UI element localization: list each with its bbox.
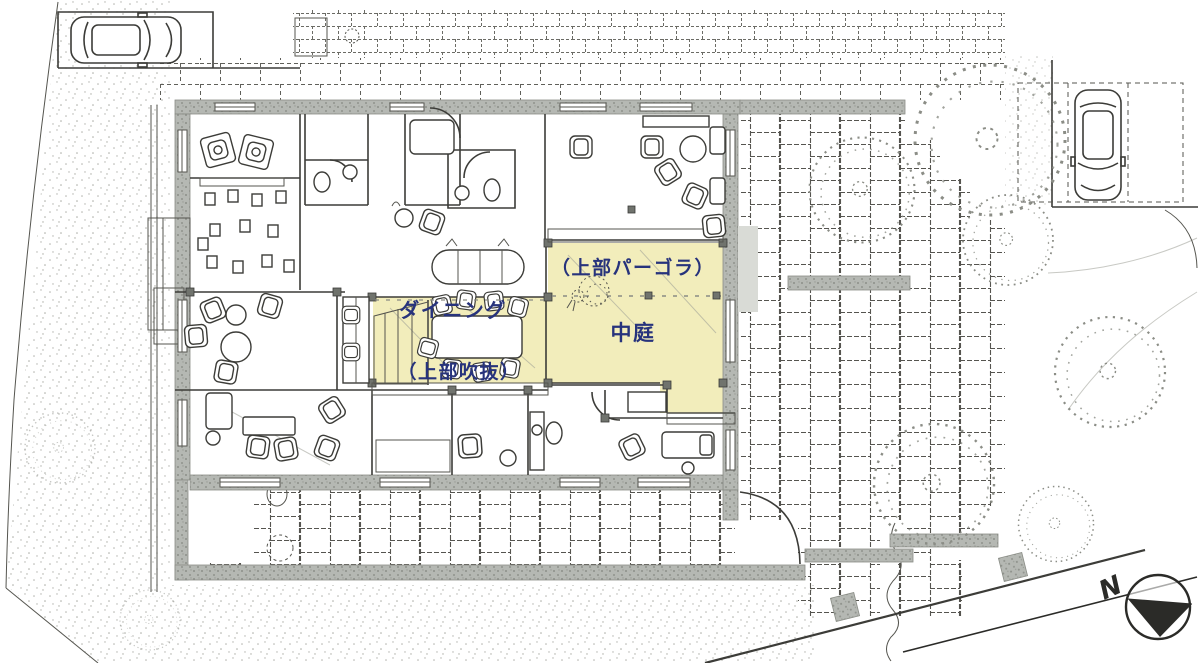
garden-path-line <box>1048 238 1197 273</box>
kitchen-island <box>432 239 524 284</box>
tree-icon <box>1055 317 1165 427</box>
hall-furniture <box>392 202 446 236</box>
courtyard-label: 中庭 <box>611 321 656 345</box>
north-label: N <box>1095 570 1127 606</box>
tree-icon <box>1019 487 1094 562</box>
brick-terrace-south <box>190 490 735 565</box>
library-shelves <box>198 190 294 273</box>
engawa-east <box>738 226 758 312</box>
garden-step-wall <box>805 549 913 562</box>
south-wing-furniture <box>376 392 714 474</box>
living-room-furniture <box>570 116 726 238</box>
car-icon <box>71 13 181 67</box>
office-furniture <box>206 393 347 462</box>
desk-counter <box>342 297 369 383</box>
dining-void-note: （上部吹抜） <box>397 360 520 383</box>
fence-post <box>998 552 1027 581</box>
brick-band-top <box>293 8 1005 58</box>
car-icon <box>1071 90 1125 200</box>
terrace-wall-south <box>175 565 805 580</box>
gravel-band-left <box>6 0 170 585</box>
terrace-wall-east <box>723 490 738 520</box>
tatami-room-furniture <box>200 132 284 186</box>
terrace-gap <box>190 490 252 563</box>
garden-step-wall <box>890 534 998 547</box>
dining-label: ダイニング <box>399 298 507 322</box>
paver-band-top <box>160 58 1005 100</box>
gravel-patch-right <box>1005 55 1053 205</box>
sitting-room-furniture <box>184 292 284 384</box>
site-floor-plan: ダイニング （上部吹抜） （上部パーゴラ） 中庭 <box>0 0 1198 663</box>
garden-path-line <box>1068 292 1197 410</box>
fence-post <box>830 592 859 621</box>
garden-wall-north <box>740 100 905 114</box>
gravel-band-bottom <box>6 585 815 663</box>
pergola-note: （上部パーゴラ） <box>551 256 715 279</box>
